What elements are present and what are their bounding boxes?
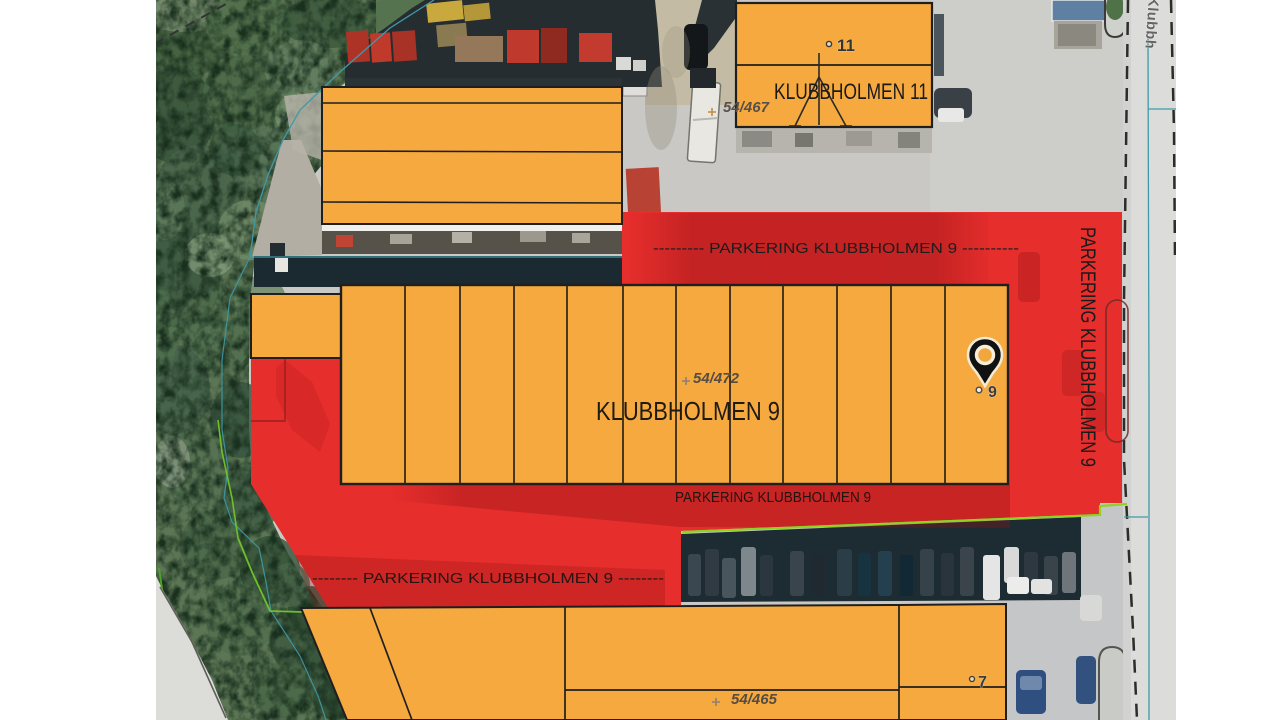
svg-text:--------- PARKERING KLUBBHOLME: --------- PARKERING KLUBBHOLMEN 9 ------… — [653, 240, 1019, 257]
svg-text:7: 7 — [978, 674, 987, 691]
svg-text:PARKERING KLUBBHOLMEN 9: PARKERING KLUBBHOLMEN 9 — [1076, 227, 1100, 467]
svg-text:KLUBBHOLMEN 9: KLUBBHOLMEN 9 — [596, 396, 780, 426]
svg-text:54/472: 54/472 — [693, 370, 740, 387]
svg-text:PARKERING KLUBBHOLMEN 9: PARKERING KLUBBHOLMEN 9 — [675, 489, 871, 506]
svg-text:KLUBBHOLMEN 11: KLUBBHOLMEN 11 — [774, 79, 928, 104]
svg-text:Klubbh: Klubbh — [1141, 0, 1161, 50]
svg-text:11: 11 — [837, 36, 855, 55]
svg-text:-------- PARKERING KLUBBHOLMEN: -------- PARKERING KLUBBHOLMEN 9 -------… — [312, 570, 664, 587]
svg-text:9: 9 — [988, 384, 997, 401]
svg-text:54/465: 54/465 — [731, 691, 778, 708]
svg-text:54/467: 54/467 — [723, 99, 770, 116]
